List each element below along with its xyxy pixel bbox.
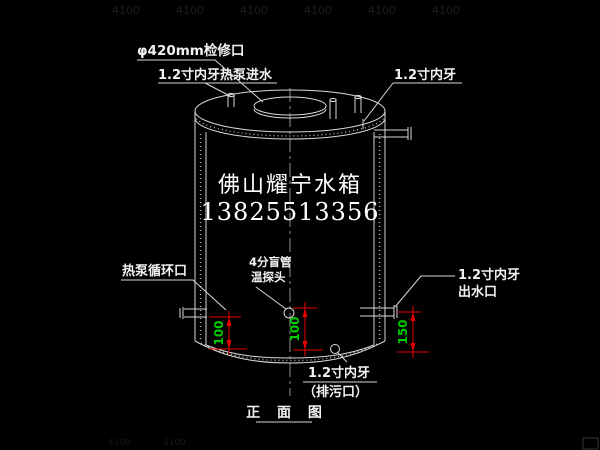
dimension-value: 100: [212, 320, 226, 345]
watermark-text: 4100: [240, 4, 268, 17]
leader-outlet: [395, 276, 455, 307]
cad-drawing-canvas: 4100 4100 4100 4100 4100 4100 4100 4100: [0, 0, 600, 450]
front-view-drawing: 4100 4100 4100 4100 4100 4100 4100 4100: [0, 0, 600, 450]
watermark-text: 4100: [304, 4, 332, 17]
label-hp-inlet: 1.2寸内牙热泵进水: [158, 67, 273, 83]
label-probe-line1: 4分盲管: [249, 255, 292, 269]
nozzle-right: [355, 97, 361, 113]
watermark-text: 4100: [112, 4, 140, 17]
leader-lines: [121, 60, 462, 422]
label-drain-line2: （排污口）: [303, 384, 368, 400]
label-probe-line2: 温探头: [251, 270, 286, 284]
watermark-corner-box: [583, 438, 598, 449]
leader-hp-inlet: [158, 83, 277, 96]
leader-top-right-thread: [364, 83, 462, 121]
watermark-text: 4100: [108, 438, 131, 448]
label-outlet-line1: 1.2寸内牙: [458, 267, 520, 283]
dimension-value: 100: [288, 316, 302, 341]
nozzle-mid: [330, 100, 336, 119]
brand-name: 佛山耀宁水箱: [218, 173, 362, 198]
brand-block: 佛山耀宁水箱 13825513356: [201, 173, 380, 226]
watermark-text: 4100: [432, 4, 460, 17]
watermark-text: 4100: [368, 4, 396, 17]
drain-port: [331, 345, 340, 354]
leader-hp-circulation: [121, 280, 226, 310]
drawing-title: 正 面 图: [246, 405, 328, 421]
label-outlet-line2: 出水口: [458, 284, 497, 300]
label-top-right-thread: 1.2寸内牙: [394, 67, 456, 83]
leader-probe: [256, 287, 286, 309]
label-hp-circulation: 热泵循环口: [122, 263, 187, 279]
label-manhole: φ420mm检修口: [137, 42, 244, 59]
brand-phone: 13825513356: [201, 198, 380, 226]
label-drain-line1: 1.2寸内牙: [308, 365, 370, 381]
pipe-hp-circulation: [180, 307, 207, 319]
nozzle-mid-cap: [330, 98, 336, 101]
dimension-right-150: 150: [396, 306, 429, 358]
dimension-value: 150: [396, 319, 410, 344]
watermark-text: 4100: [176, 4, 204, 17]
pipe-outlet: [360, 305, 397, 319]
watermark-text: 4100: [163, 438, 186, 448]
